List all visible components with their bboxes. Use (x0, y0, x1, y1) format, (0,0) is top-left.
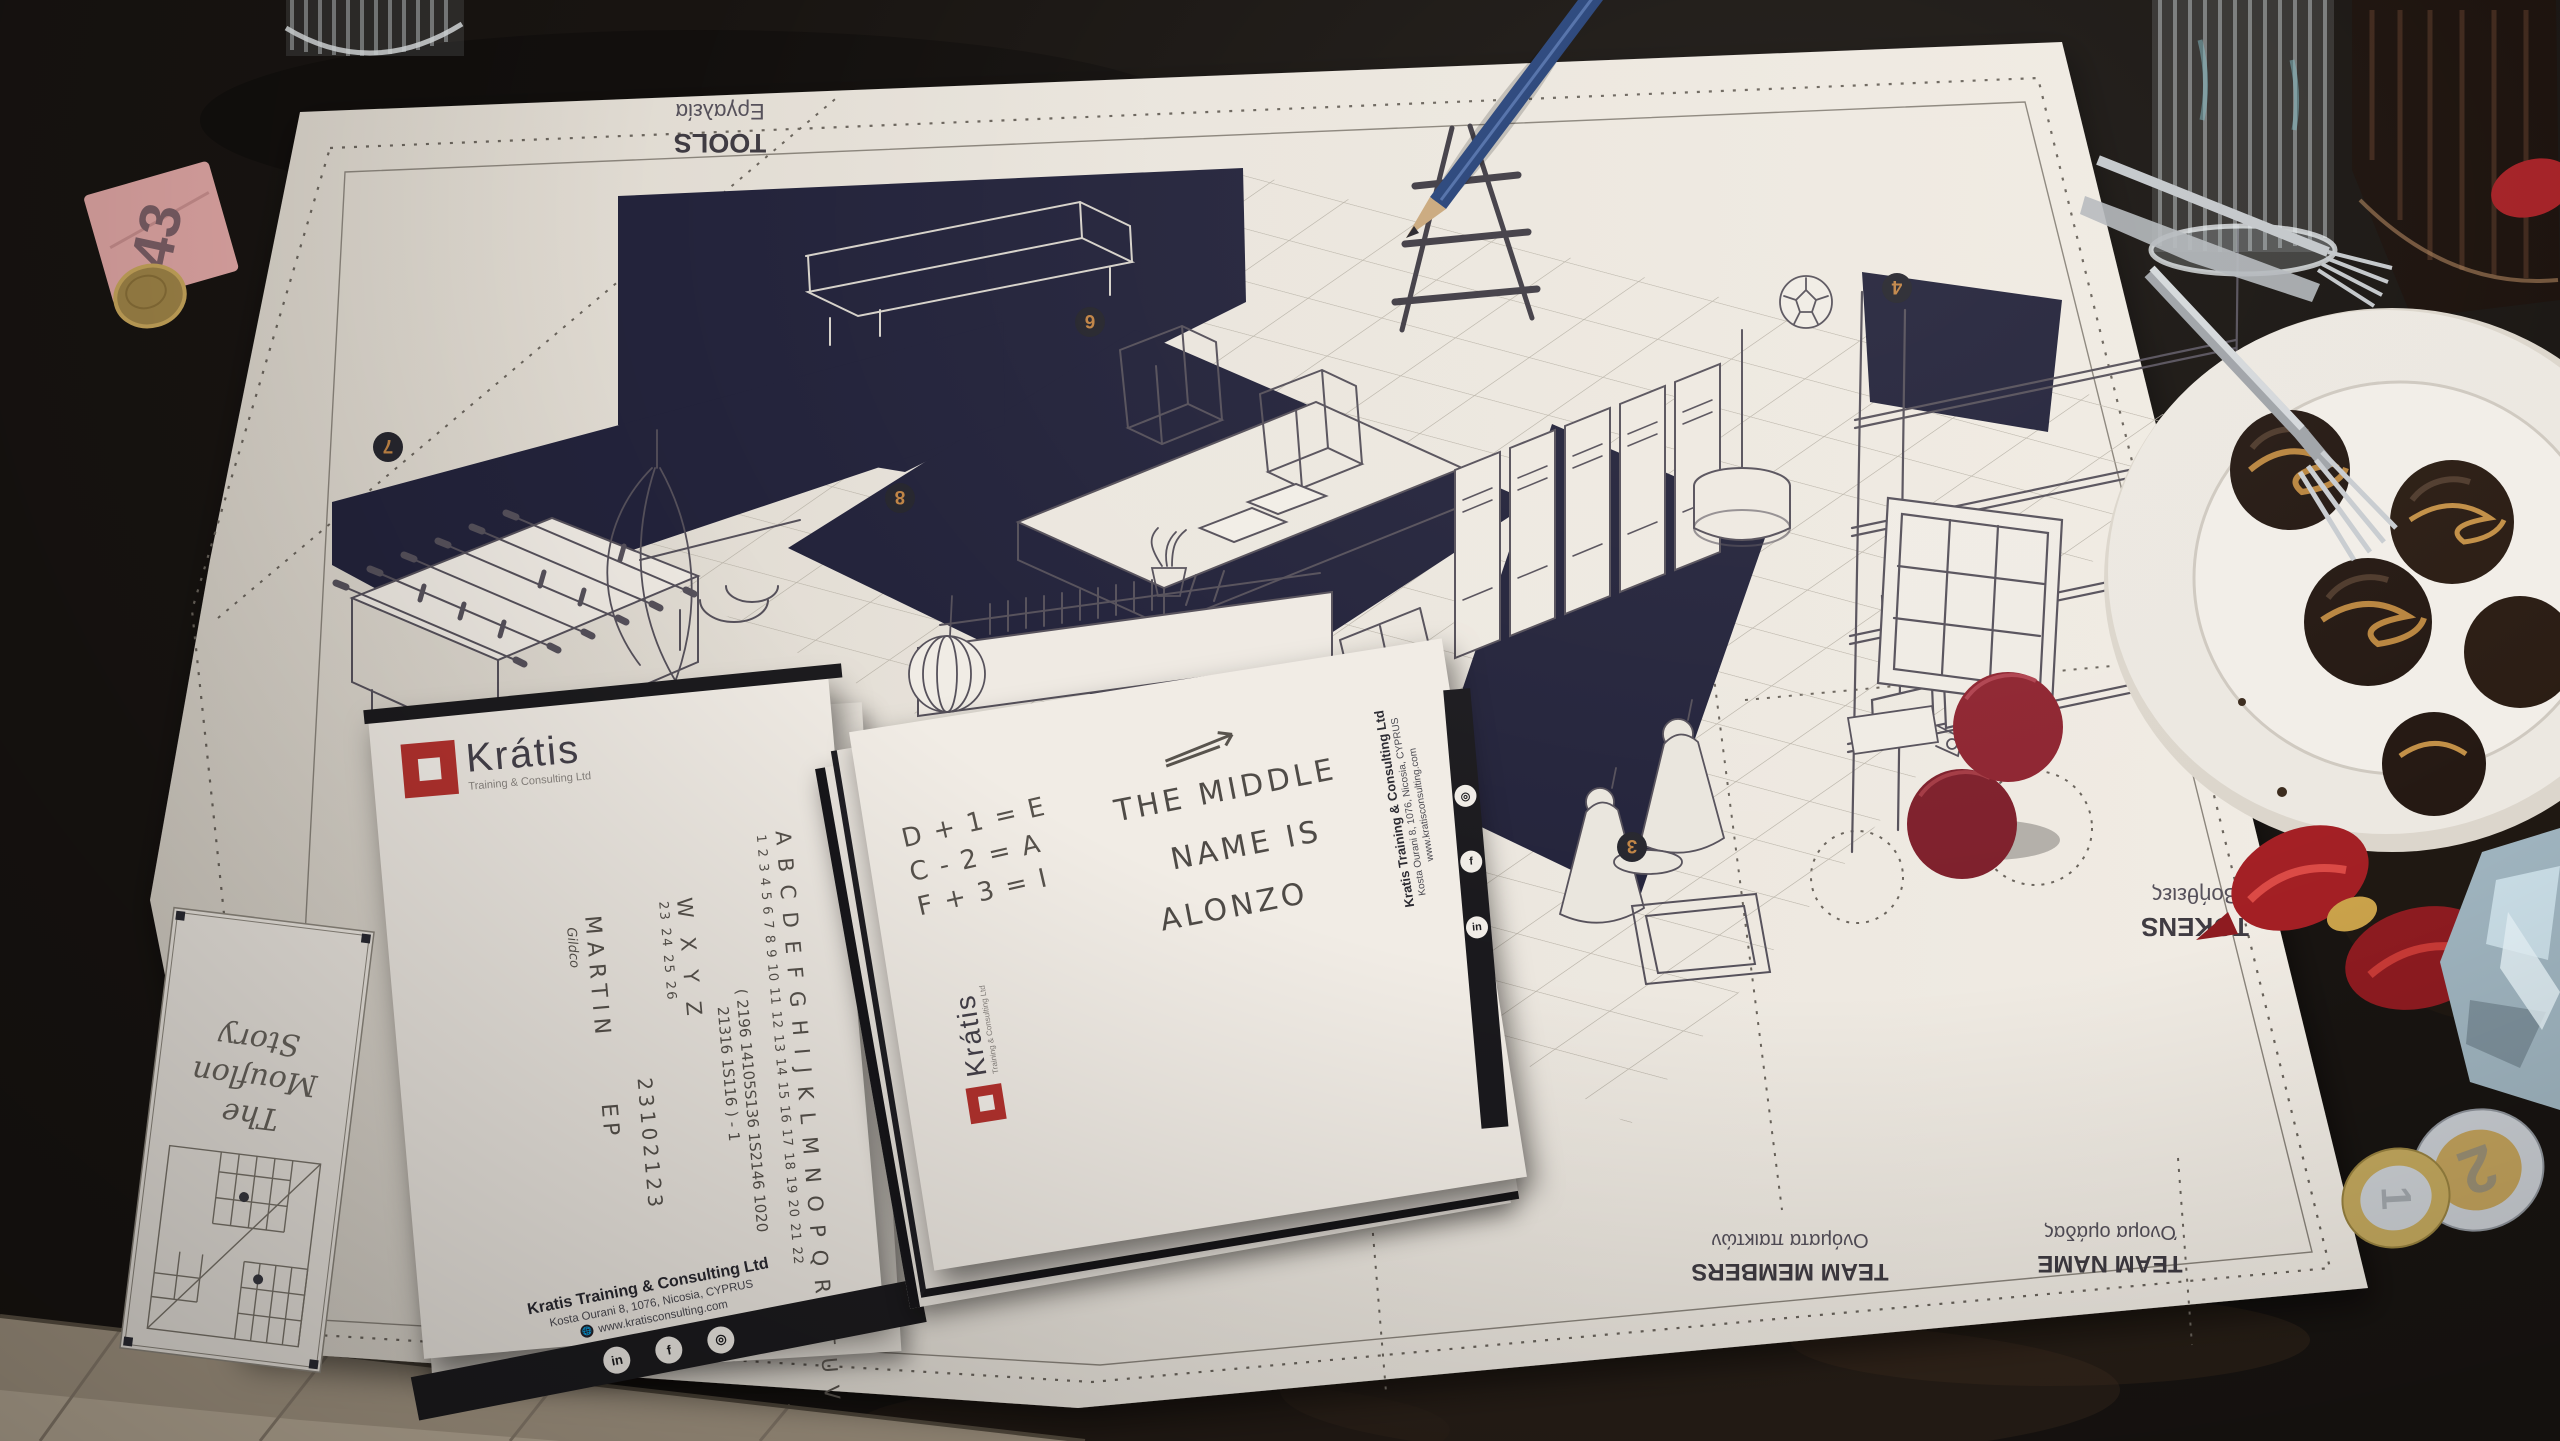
glass-top-left (286, 0, 464, 56)
facebook-icon: f (1459, 850, 1483, 874)
svg-text:TEAM NAME: TEAM NAME (2037, 1250, 2182, 1277)
alphabet-cipher-card: Krátis Training & Consulting Ltd A B C D… (368, 673, 885, 1359)
instagram-icon: ◎ (705, 1324, 737, 1356)
kratis-logo-icon (966, 1083, 1007, 1124)
badge-7: 7 (383, 435, 394, 456)
svg-text:Ονόματα παικτών: Ονόματα παικτών (1711, 1229, 1868, 1251)
kratis-logo-sideways: Krátis Training & Consulting Ltd (950, 985, 1008, 1125)
svg-text:Βοήθειες: Βοήθειες (2152, 883, 2239, 908)
badge-6: 6 (1085, 310, 1096, 331)
tools-label: TOOLS Εργαλεία (674, 99, 767, 158)
svg-text:Όνομα ομάδας: Όνομα ομάδας (2044, 1221, 2177, 1243)
clue-card: D + 1 = E C - 2 = A F + 3 = I THE MIDDLE… (849, 638, 1527, 1270)
tabletop-photo: 7 8 6 4 3 TOOLS Εργαλεία TOKENS Βοήθειες… (0, 0, 2560, 1441)
svg-text:TOOLS: TOOLS (674, 128, 767, 158)
badge-8: 8 (895, 486, 906, 507)
kratis-logo-icon (400, 740, 459, 799)
linkedin-icon: in (1465, 915, 1489, 939)
badge-4: 4 (1891, 276, 1902, 297)
red-token (1953, 672, 2063, 782)
mouflon-logo-drawing (134, 1136, 333, 1356)
window-drawing (1878, 498, 2062, 705)
player-name-suffix: EP (596, 1102, 624, 1141)
ticket-number: 43 (118, 198, 195, 275)
handwritten-formulas: D + 1 = E C - 2 = A F + 3 = I (898, 790, 1065, 926)
instagram-icon: ◎ (1454, 784, 1478, 808)
svg-text:TEAM MEMBERS: TEAM MEMBERS (1691, 1258, 1888, 1285)
globe-icon: 🌐 (580, 1324, 595, 1339)
facebook-icon: f (653, 1334, 685, 1366)
soccer-ball-drawing (1780, 276, 1832, 328)
linkedin-icon: in (601, 1344, 633, 1376)
badge-3: 3 (1627, 835, 1638, 856)
one-euro-numeral: 1 (2372, 1185, 2420, 1211)
kratis-logo: Krátis Training & Consulting Ltd (400, 728, 591, 798)
svg-text:Εργαλεία: Εργαλεία (675, 99, 765, 124)
red-token (1907, 769, 2017, 879)
handwritten-clue: THE MIDDLE NAME IS ALONZO (1109, 741, 1364, 955)
mouflon-story-title: The Mouflon Story (160, 1010, 349, 1145)
